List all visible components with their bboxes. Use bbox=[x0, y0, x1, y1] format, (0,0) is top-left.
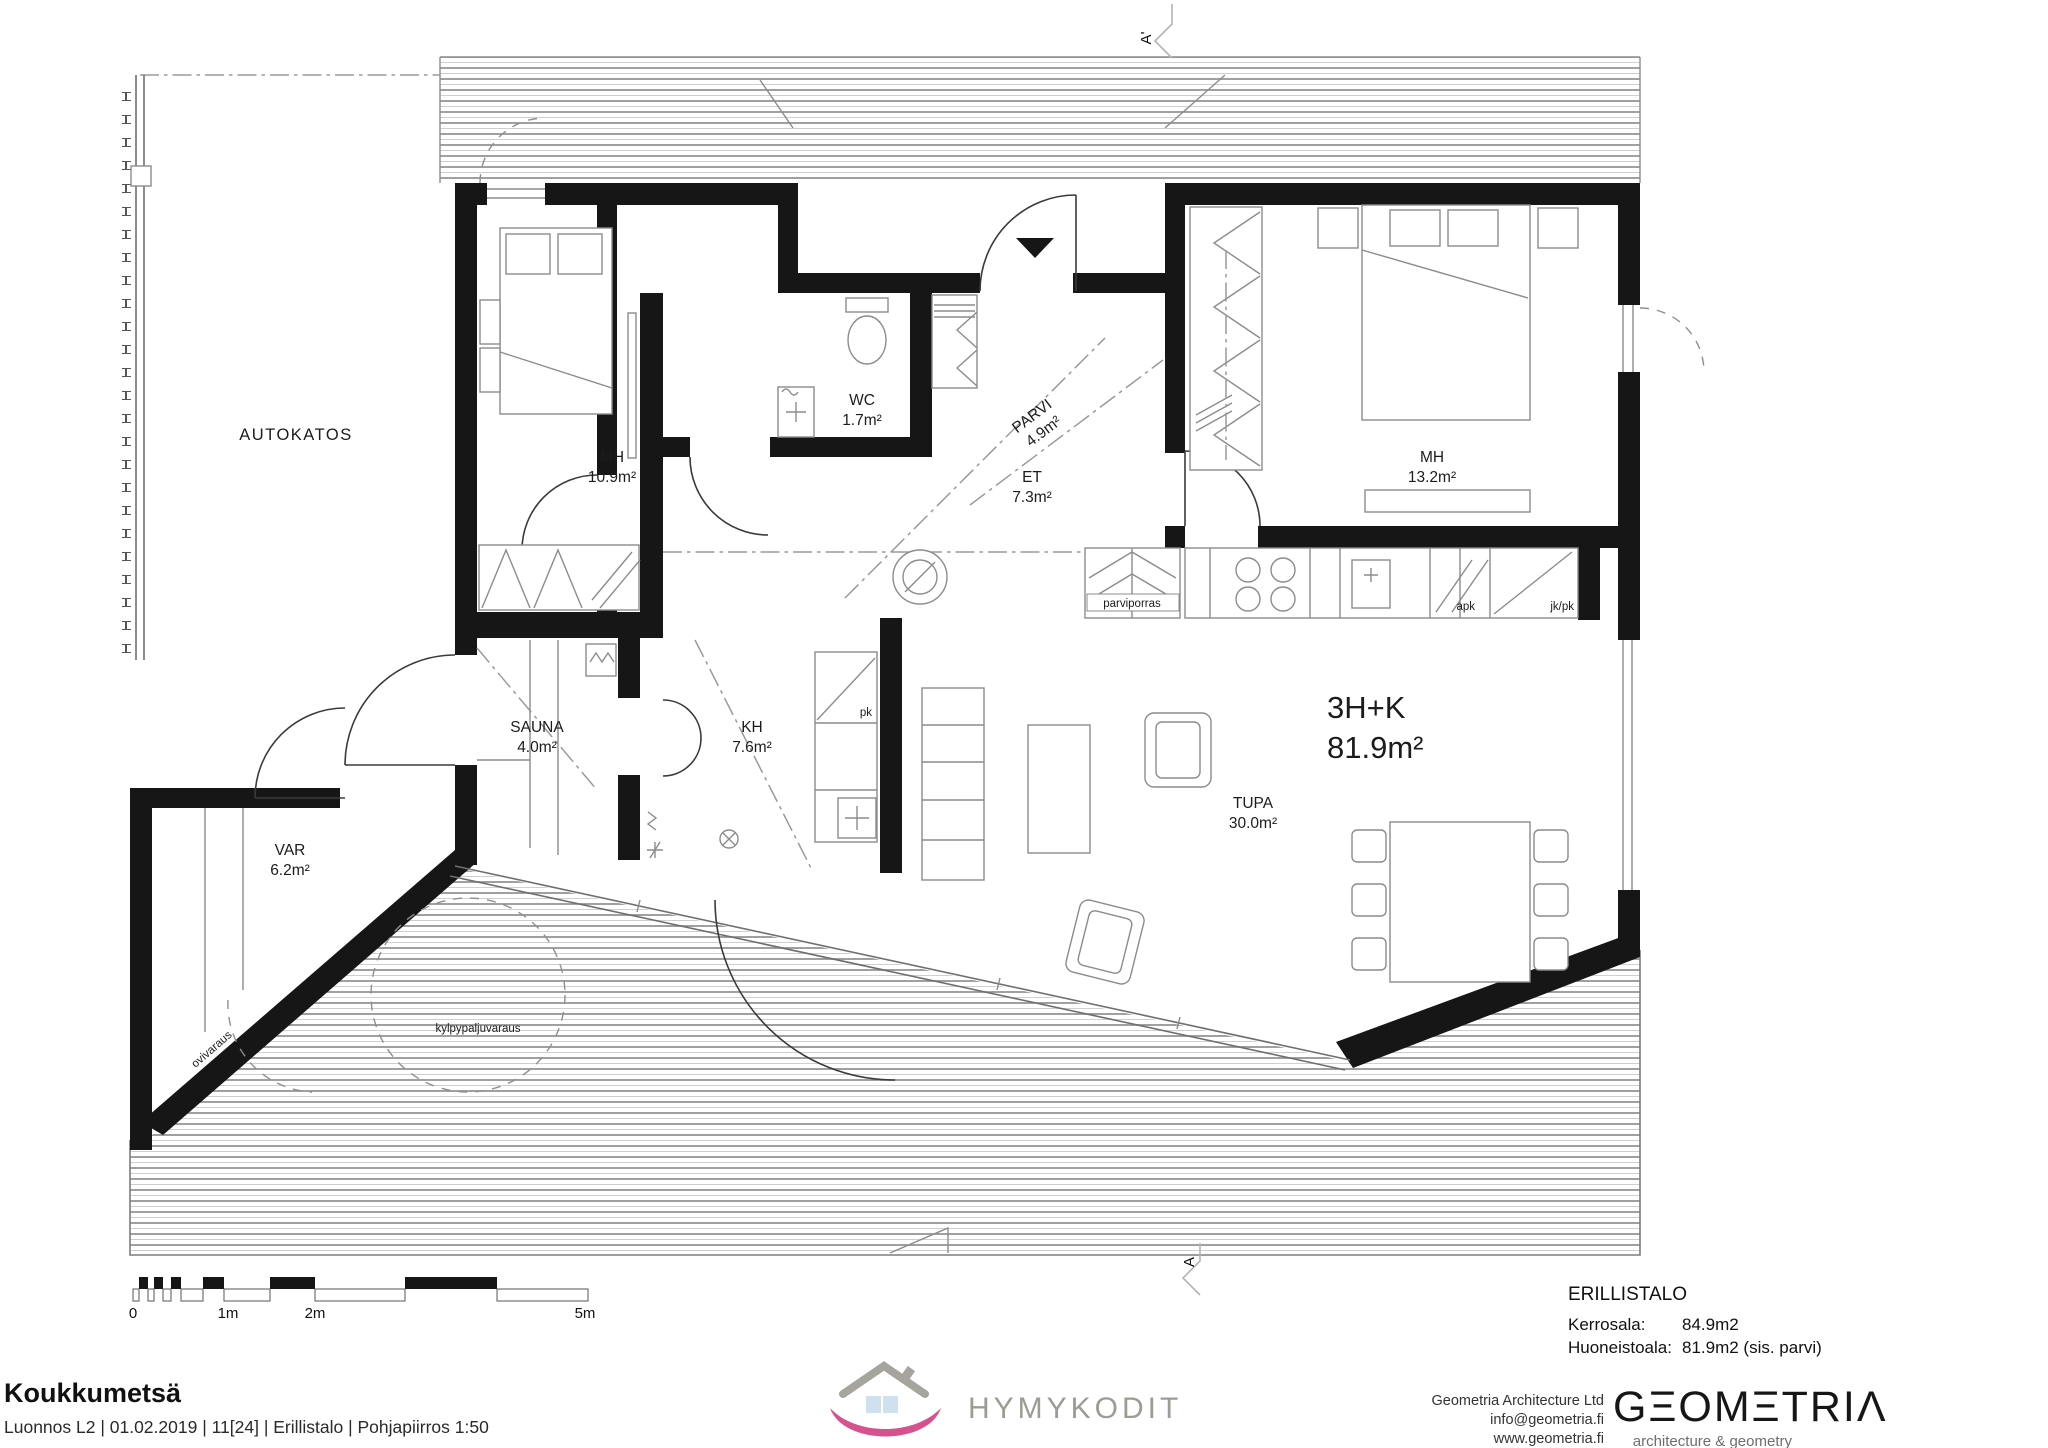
label-kylpypaljuvaraus: kylpypaljuvaraus bbox=[435, 1023, 520, 1035]
floor-plan-sheet: A' A AUTOKATOS MH10.9m² WC1.7m² PARVI4.9… bbox=[0, 0, 2048, 1448]
section-label-top: A' bbox=[1138, 31, 1155, 44]
architect-email: info@geometria.fi bbox=[1490, 1412, 1604, 1428]
architect-website: www.geometria.fi bbox=[1493, 1431, 1604, 1447]
geometria-tagline: architecture & geometry bbox=[1633, 1433, 1793, 1448]
scale-5m: 5m bbox=[575, 1305, 596, 1322]
brand-name: HYMYKODIT bbox=[968, 1392, 1182, 1425]
project-title: Koukkumetsä bbox=[4, 1378, 182, 1408]
title-block: Koukkumetsä Luonnos L2 | 01.02.2019 | 11… bbox=[4, 1378, 489, 1437]
scale-bar: 0 1m 2m 5m bbox=[129, 1277, 596, 1322]
dining-table bbox=[1390, 822, 1530, 982]
kerrosala-value: 84.9m2 bbox=[1682, 1315, 1739, 1334]
carport-slat-wall bbox=[122, 78, 131, 653]
toilet bbox=[846, 298, 888, 312]
huoneistoala-value: 81.9m2 (sis. parvi) bbox=[1682, 1338, 1822, 1357]
scale-1m: 1m bbox=[218, 1305, 239, 1322]
kerrosala-label: Kerrosala: bbox=[1568, 1315, 1645, 1334]
scale-2m: 2m bbox=[305, 1305, 326, 1322]
floor-plan-drawing: A' A AUTOKATOS MH10.9m² WC1.7m² PARVI4.9… bbox=[0, 0, 2048, 1448]
label-unit-type: 3H+K bbox=[1327, 690, 1406, 725]
huoneistoala-label: Huoneistoala: bbox=[1568, 1338, 1672, 1357]
label-jk-pk: jk/pk bbox=[1549, 601, 1574, 613]
label-pk: pk bbox=[860, 707, 872, 719]
geometria-logo: GΞOMΞTRIΛ bbox=[1613, 1383, 1888, 1431]
label-autokatos: AUTOKATOS bbox=[239, 426, 352, 444]
armchair bbox=[1145, 713, 1211, 787]
area-summary: ERILLISTALO Kerrosala: 84.9m2 Huoneistoa… bbox=[1568, 1284, 1822, 1357]
section-label-bottom: A bbox=[1181, 1257, 1198, 1267]
coffee-table bbox=[1028, 725, 1090, 853]
entry-closet bbox=[932, 295, 977, 388]
building-type: ERILLISTALO bbox=[1568, 1284, 1687, 1305]
carport-post bbox=[131, 166, 151, 186]
label-apk: apk bbox=[1456, 601, 1475, 613]
house-window-icon bbox=[883, 1396, 898, 1413]
scale-0: 0 bbox=[129, 1305, 137, 1322]
drawing-details: Luonnos L2 | 01.02.2019 | 11[24] | Erill… bbox=[4, 1417, 489, 1437]
section-marker-top: A' bbox=[1138, 4, 1172, 58]
architect-name: Geometria Architecture Ltd bbox=[1432, 1393, 1604, 1409]
house-window-icon bbox=[866, 1396, 881, 1413]
kitchen bbox=[1185, 548, 1578, 618]
hymykodit-logo: HYMYKODIT bbox=[830, 1366, 1182, 1437]
closet bbox=[479, 545, 639, 610]
iv-unit bbox=[893, 550, 947, 604]
bed bbox=[1362, 205, 1530, 420]
label-parviporras: parviporras bbox=[1103, 598, 1161, 610]
sofa bbox=[922, 688, 984, 880]
label-unit-area: 81.9m² bbox=[1327, 730, 1423, 765]
carport bbox=[122, 75, 440, 660]
architect-block: Geometria Architecture Ltd info@geometri… bbox=[1432, 1383, 1888, 1448]
